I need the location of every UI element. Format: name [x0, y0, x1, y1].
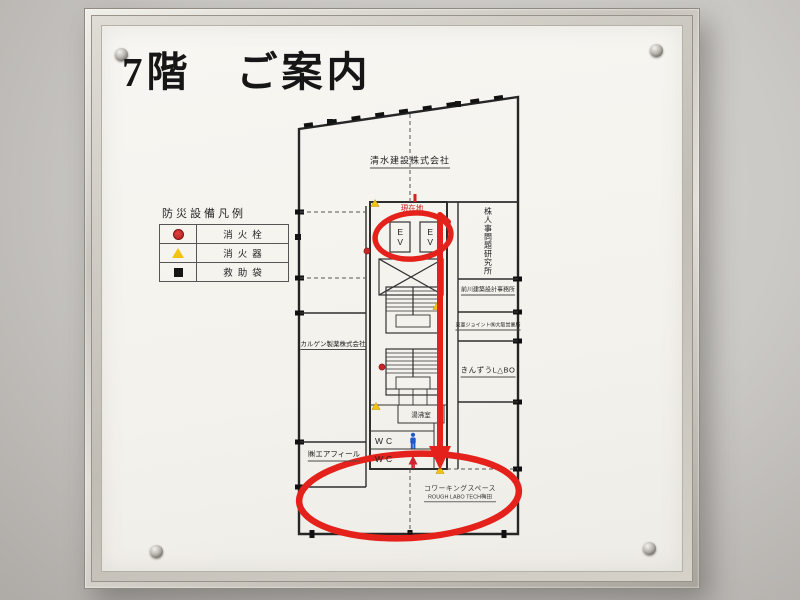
stairs-upper	[386, 287, 440, 333]
elevator-label: EV	[420, 222, 440, 252]
legend-item-label: 救助袋	[197, 263, 288, 281]
legend: 防災設備凡例 消火栓 消火器 救助袋	[159, 205, 293, 282]
top-wall-window-marks	[304, 96, 513, 126]
legend-item-label: 消火栓	[197, 225, 288, 243]
current-location-label: 現在地	[401, 203, 424, 214]
sign-frame: 7階 ご案内 防災設備凡例 消火栓 消火器	[84, 8, 700, 589]
elevator-label: EV	[390, 222, 410, 252]
tenant-airfeel-label: ㈱エアフィール	[308, 449, 360, 462]
legend-row: 救助袋	[160, 262, 288, 281]
floor-plan: 清水建設株式会社 現在地 EV EV 株人事問題研究所 前川建築設計事務所 東亜…	[282, 89, 538, 549]
coworking-space-name: コワーキングスペース	[424, 482, 496, 492]
wc-men-icon	[410, 433, 415, 449]
legend-heading: 防災設備凡例	[162, 205, 293, 221]
closet-partitions	[370, 389, 447, 405]
legend-table: 消火栓 消火器 救助袋	[159, 224, 289, 282]
wc-women-label: WC	[375, 454, 395, 464]
tenant-toa-joint-label: 東亜ジョイント㈱大阪営業所	[455, 322, 520, 331]
photo-background: 7階 ご案内 防災設備凡例 消火栓 消火器	[0, 0, 800, 600]
tenant-kinzu-labo-label: きんずうL△BO	[461, 365, 516, 378]
fire-extinguisher-icon	[172, 248, 184, 258]
tenant-shimizu-label: 清水建設株式会社	[370, 154, 450, 169]
screw-icon	[150, 545, 163, 558]
legend-row: 消火栓	[160, 225, 288, 243]
fire-hydrant-markers	[364, 248, 385, 370]
sign-board: 7階 ご案内 防災設備凡例 消火栓 消火器	[101, 25, 683, 572]
wc-men-label: WC	[375, 436, 395, 446]
tenant-karugen-label: カルゲン製薬株式会社	[301, 338, 366, 350]
tenant-maekawa-label: 前川建築設計事務所	[461, 285, 515, 296]
screw-icon	[650, 44, 663, 57]
coworking-space-label: コワーキングスペース ROUGH LABO TECH梅田	[424, 482, 496, 502]
screw-icon	[643, 542, 656, 555]
stairs-lower	[386, 349, 440, 395]
legend-item-label: 消火器	[197, 244, 288, 262]
legend-row: 消火器	[160, 243, 288, 262]
coworking-space-brand: ROUGH LABO TECH梅田	[424, 492, 496, 502]
fire-hydrant-icon	[173, 229, 184, 240]
sign-frame-inner: 7階 ご案内 防災設備凡例 消火栓 消火器	[91, 15, 693, 582]
kitchenette-label: 湯沸室	[411, 409, 431, 419]
tenant-jinji-kenkyujo-label: 株人事問題研究所	[483, 207, 494, 275]
rescue-bag-icon	[174, 268, 183, 277]
